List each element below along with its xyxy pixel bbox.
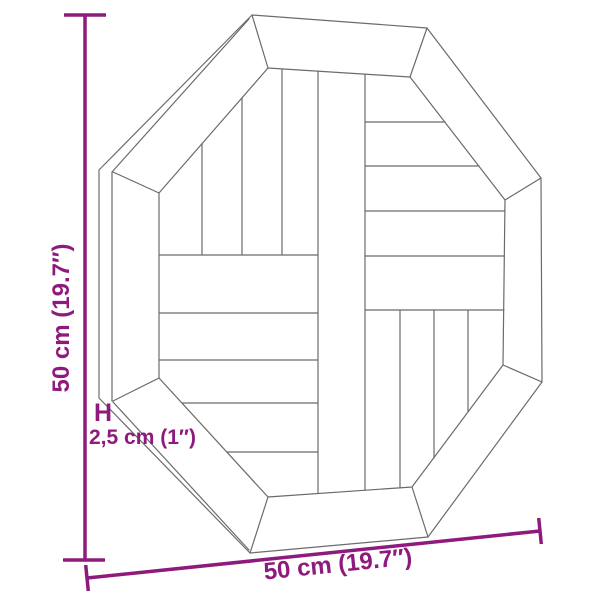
center-plank-lines <box>318 71 365 493</box>
edge-thickness-lines <box>112 19 249 550</box>
dimension-lines <box>63 15 541 591</box>
outer-octagon-outline <box>99 15 542 553</box>
planks-right-horizontal <box>365 122 505 310</box>
inner-octagon-frame <box>159 68 505 497</box>
planks-bottom-right <box>400 310 468 488</box>
tabletop-line-drawing <box>0 0 600 600</box>
thickness-dimension-label: 2,5 cm (1″) <box>89 427 196 448</box>
drawing-lines <box>99 15 542 553</box>
planks-top-left <box>202 69 282 255</box>
thickness-marker: H <box>94 401 112 426</box>
product-dimension-diagram: 50 cm (19.7″) 50 cm (19.7″) H 2,5 cm (1″… <box>0 0 600 600</box>
height-dimension-label: 50 cm (19.7″) <box>50 244 74 393</box>
planks-left-horizontal <box>159 255 318 452</box>
